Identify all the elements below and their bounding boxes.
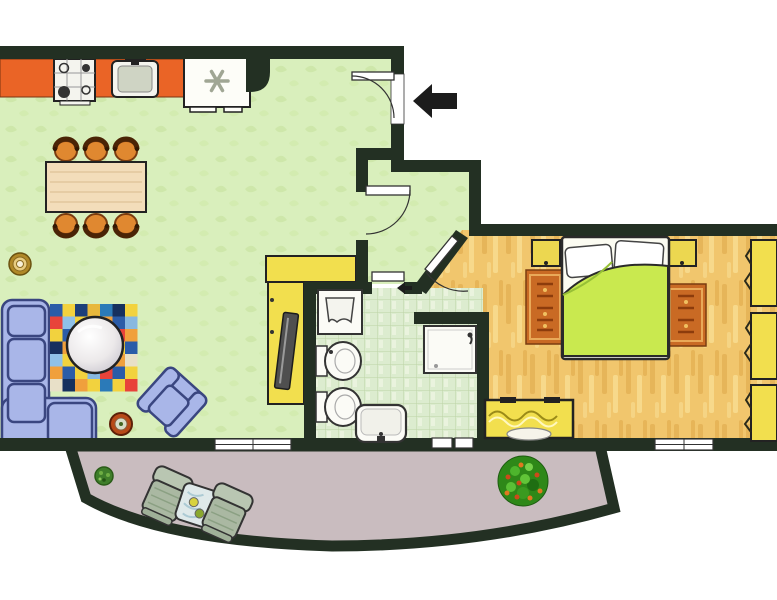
rug-cell <box>113 379 126 392</box>
nightstand-left <box>532 240 560 266</box>
stove <box>54 59 95 105</box>
bathroom-small-windows <box>432 438 473 448</box>
plant-pot <box>110 413 132 435</box>
hall-door-leaf <box>366 186 410 195</box>
refrigerator <box>184 55 250 112</box>
wall-bath-left <box>304 282 316 450</box>
rug-cell <box>50 342 63 355</box>
nightstand-right <box>668 240 696 266</box>
dining-chair <box>53 139 79 161</box>
shower <box>424 326 476 373</box>
small-plant <box>95 467 113 485</box>
rug-cell <box>50 317 63 330</box>
toilet <box>316 388 361 426</box>
dining-chair <box>53 214 79 236</box>
rug-cell <box>63 367 76 380</box>
rug-cell <box>88 379 101 392</box>
dining-chair <box>83 214 109 236</box>
shower-drain <box>434 364 438 368</box>
wall-bedroom-top <box>469 224 777 236</box>
ring-pot <box>9 253 31 275</box>
dining-table <box>46 162 146 212</box>
bathroom-door-leaf <box>372 272 404 281</box>
rug-cell <box>125 329 138 342</box>
oriental-rug-right <box>666 284 706 346</box>
dining-chair <box>113 139 139 161</box>
dining-chair <box>83 139 109 161</box>
floor-plan-svg <box>0 0 777 600</box>
wall-entry-upper <box>391 46 404 74</box>
rug-cell <box>50 329 63 342</box>
bidet <box>316 342 361 380</box>
rug-cell <box>125 354 138 367</box>
double-bed <box>562 237 669 359</box>
entrance-door-opening <box>391 74 404 124</box>
kitchen-sink <box>112 56 158 97</box>
rug-cell <box>113 304 126 317</box>
rug-cell <box>100 304 113 317</box>
rug-cell <box>63 379 76 392</box>
oriental-rug-left <box>526 270 564 344</box>
rug-cell <box>100 379 113 392</box>
wall-step-1 <box>356 148 404 160</box>
bedroom-window <box>655 439 713 450</box>
rug-cell <box>75 304 88 317</box>
wall-step-2 <box>391 160 481 172</box>
rug-cell <box>125 342 138 355</box>
flowering-bush <box>498 456 548 506</box>
rug-cell <box>50 379 63 392</box>
rug-cell <box>125 304 138 317</box>
washbasin <box>356 405 406 442</box>
rug-cell <box>125 367 138 380</box>
floor-plan <box>0 0 777 600</box>
rug-cell <box>125 379 138 392</box>
rug-cell <box>125 317 138 330</box>
rug-cell <box>75 379 88 392</box>
rug-cell <box>63 304 76 317</box>
entrance-arrow-icon <box>413 84 457 118</box>
rug-cell <box>113 367 126 380</box>
round-coffee-table <box>67 317 123 373</box>
rug-cell <box>50 367 63 380</box>
dining-chair <box>113 214 139 236</box>
living-terrace-window <box>215 439 291 450</box>
rug-cell <box>88 304 101 317</box>
rug-cell <box>50 304 63 317</box>
dining-set <box>46 139 146 236</box>
wall-top <box>0 46 404 59</box>
rug-cell <box>50 354 63 367</box>
dresser <box>485 397 573 440</box>
washbasin-unit <box>318 290 362 334</box>
